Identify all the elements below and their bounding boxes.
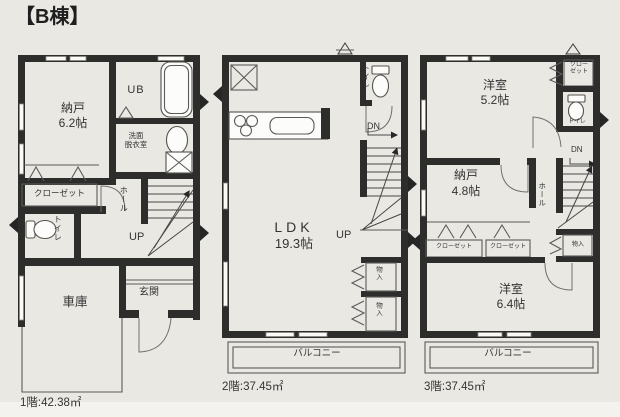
room-size-ldk: 19.3帖 bbox=[258, 237, 330, 252]
win-shape bbox=[70, 57, 86, 61]
steps-shape bbox=[148, 186, 193, 218]
floor3-area-label: 3階:37.45㎡ bbox=[424, 381, 485, 394]
thin-shape bbox=[550, 237, 561, 254]
wall-shape bbox=[360, 140, 367, 197]
room-size-bedroom2: 6.4帖 bbox=[478, 298, 544, 312]
wall-shape bbox=[74, 214, 81, 262]
tri-shape bbox=[213, 86, 222, 102]
fix-shape bbox=[373, 75, 389, 97]
steps-shape bbox=[367, 148, 401, 196]
thin-shape bbox=[352, 301, 364, 325]
win-shape bbox=[266, 333, 294, 337]
floor2-plan bbox=[213, 43, 417, 373]
steps-shape bbox=[566, 172, 589, 222]
arc-shape bbox=[545, 263, 572, 290]
wall-shape bbox=[556, 86, 600, 92]
stairs-up-label-2f: UP bbox=[336, 229, 351, 242]
room-label-toilet-3f: トイレ bbox=[564, 119, 590, 126]
floor1-plan bbox=[9, 55, 209, 392]
wall-shape bbox=[361, 291, 408, 297]
wall-shape bbox=[141, 178, 148, 224]
win-shape bbox=[422, 100, 426, 130]
room-label-toilet-2f: トイレ bbox=[361, 64, 370, 90]
wall-shape bbox=[18, 206, 106, 214]
room-label-garage: 車庫 bbox=[55, 295, 95, 309]
steps-shape bbox=[154, 196, 186, 248]
steps-shape bbox=[362, 198, 401, 230]
room-label-closet-top-3f: クロー ゼット bbox=[566, 62, 592, 76]
thin-shape bbox=[352, 265, 364, 289]
wall-shape bbox=[556, 158, 563, 213]
win-shape bbox=[20, 144, 24, 174]
wall-shape bbox=[109, 55, 116, 178]
room-label-storage2-2f: 物入 bbox=[374, 302, 381, 317]
vent-shape bbox=[338, 43, 352, 54]
win-shape bbox=[299, 333, 327, 337]
floor-plan-page: 【B棟】 納戸 6.2帖 UB 洗面 脱衣室 クローゼット トイレ ホール UP… bbox=[0, 0, 620, 417]
room-label-closet2-3f: クローゼット bbox=[487, 244, 529, 251]
win-shape bbox=[472, 57, 490, 61]
tri-shape bbox=[200, 94, 209, 110]
wall-shape bbox=[556, 55, 563, 132]
arc-shape bbox=[501, 165, 528, 192]
fix-shape bbox=[372, 66, 389, 74]
stairs-down-label-3f: DN bbox=[571, 145, 583, 154]
room-size-storage-1f: 6.2帖 bbox=[40, 117, 106, 131]
fix-shape bbox=[568, 95, 585, 102]
wall-shape bbox=[556, 229, 600, 235]
tri-shape bbox=[600, 112, 609, 128]
room-label-bedroom2: 洋室 bbox=[478, 283, 544, 297]
wall-shape bbox=[360, 100, 372, 106]
thin-shape bbox=[22, 318, 122, 392]
win-shape bbox=[224, 183, 228, 209]
win-shape bbox=[20, 276, 24, 320]
thin-shape bbox=[438, 225, 510, 238]
room-label-storage1-2f: 物入 bbox=[374, 266, 381, 281]
wall-shape bbox=[593, 55, 600, 338]
room-label-bedroom1: 洋室 bbox=[462, 79, 528, 93]
win-shape bbox=[46, 57, 66, 61]
wall-shape bbox=[321, 108, 330, 139]
stairs-down-label-2f: DN bbox=[367, 121, 380, 131]
room-label-ldk: LDK bbox=[258, 219, 330, 235]
room-label-washroom: 洗面 脱衣室 bbox=[121, 132, 151, 149]
tri-shape bbox=[391, 132, 398, 139]
win-shape bbox=[446, 57, 468, 61]
floor2-area-label: 2階:37.45㎡ bbox=[222, 381, 283, 394]
win-shape bbox=[507, 333, 531, 337]
vent-shape bbox=[566, 44, 580, 54]
wall-shape bbox=[168, 310, 200, 318]
thin-shape bbox=[119, 107, 133, 118]
wall-shape bbox=[420, 158, 500, 165]
room-label-storage-1f: 納戸 bbox=[40, 102, 106, 116]
room-size-bedroom1: 5.2帖 bbox=[462, 94, 528, 108]
room-size-storage-3f: 4.8帖 bbox=[436, 185, 496, 199]
win-shape bbox=[20, 104, 24, 130]
wall-shape bbox=[556, 256, 600, 262]
room-label-closet1-3f: クローゼット bbox=[427, 244, 481, 251]
win-shape bbox=[224, 262, 228, 306]
room-label-storage-3f: 納戸 bbox=[436, 169, 496, 183]
balcony-label-3f: バルコニー bbox=[468, 349, 548, 360]
floor1-area-label: 1階:42.38㎡ bbox=[20, 397, 81, 410]
wall-shape bbox=[420, 257, 545, 263]
wall-shape bbox=[119, 262, 126, 318]
tri-shape bbox=[408, 176, 417, 192]
tri-shape bbox=[9, 217, 18, 233]
room-label-toilet-1f: トイレ bbox=[53, 215, 62, 242]
wall-shape bbox=[556, 126, 600, 132]
steps-shape bbox=[570, 158, 589, 164]
wall-shape bbox=[361, 257, 408, 263]
page-title: 【B棟】 bbox=[15, 6, 89, 29]
wall-shape bbox=[193, 55, 200, 320]
wall-shape bbox=[18, 258, 200, 266]
room-label-closet-1f: クローゼット bbox=[24, 189, 95, 199]
wall-shape bbox=[119, 310, 139, 318]
arc-shape bbox=[139, 318, 171, 352]
tri-shape bbox=[200, 225, 209, 241]
wall-shape bbox=[222, 55, 408, 62]
wall-shape bbox=[112, 118, 200, 124]
fix-shape bbox=[167, 127, 188, 154]
room-label-storage-small-3f: 物入 bbox=[565, 242, 591, 249]
fix-shape bbox=[161, 62, 192, 117]
room-label-hall-1f: ホール bbox=[119, 186, 128, 213]
room-label-entrance: 玄関 bbox=[133, 287, 165, 299]
thin-shape bbox=[231, 65, 257, 90]
balcony-label-2f: バルコニー bbox=[277, 349, 357, 360]
win-shape bbox=[158, 57, 184, 61]
win-shape bbox=[478, 333, 502, 337]
fix-shape bbox=[569, 102, 584, 120]
wall-shape bbox=[529, 162, 536, 208]
thin-shape bbox=[126, 280, 193, 284]
stairs-up-label-1f: UP bbox=[129, 231, 144, 244]
room-label-hall-3f: ホール bbox=[537, 182, 546, 208]
win-shape bbox=[422, 190, 426, 216]
room-label-unit-bath: UB bbox=[126, 84, 146, 97]
